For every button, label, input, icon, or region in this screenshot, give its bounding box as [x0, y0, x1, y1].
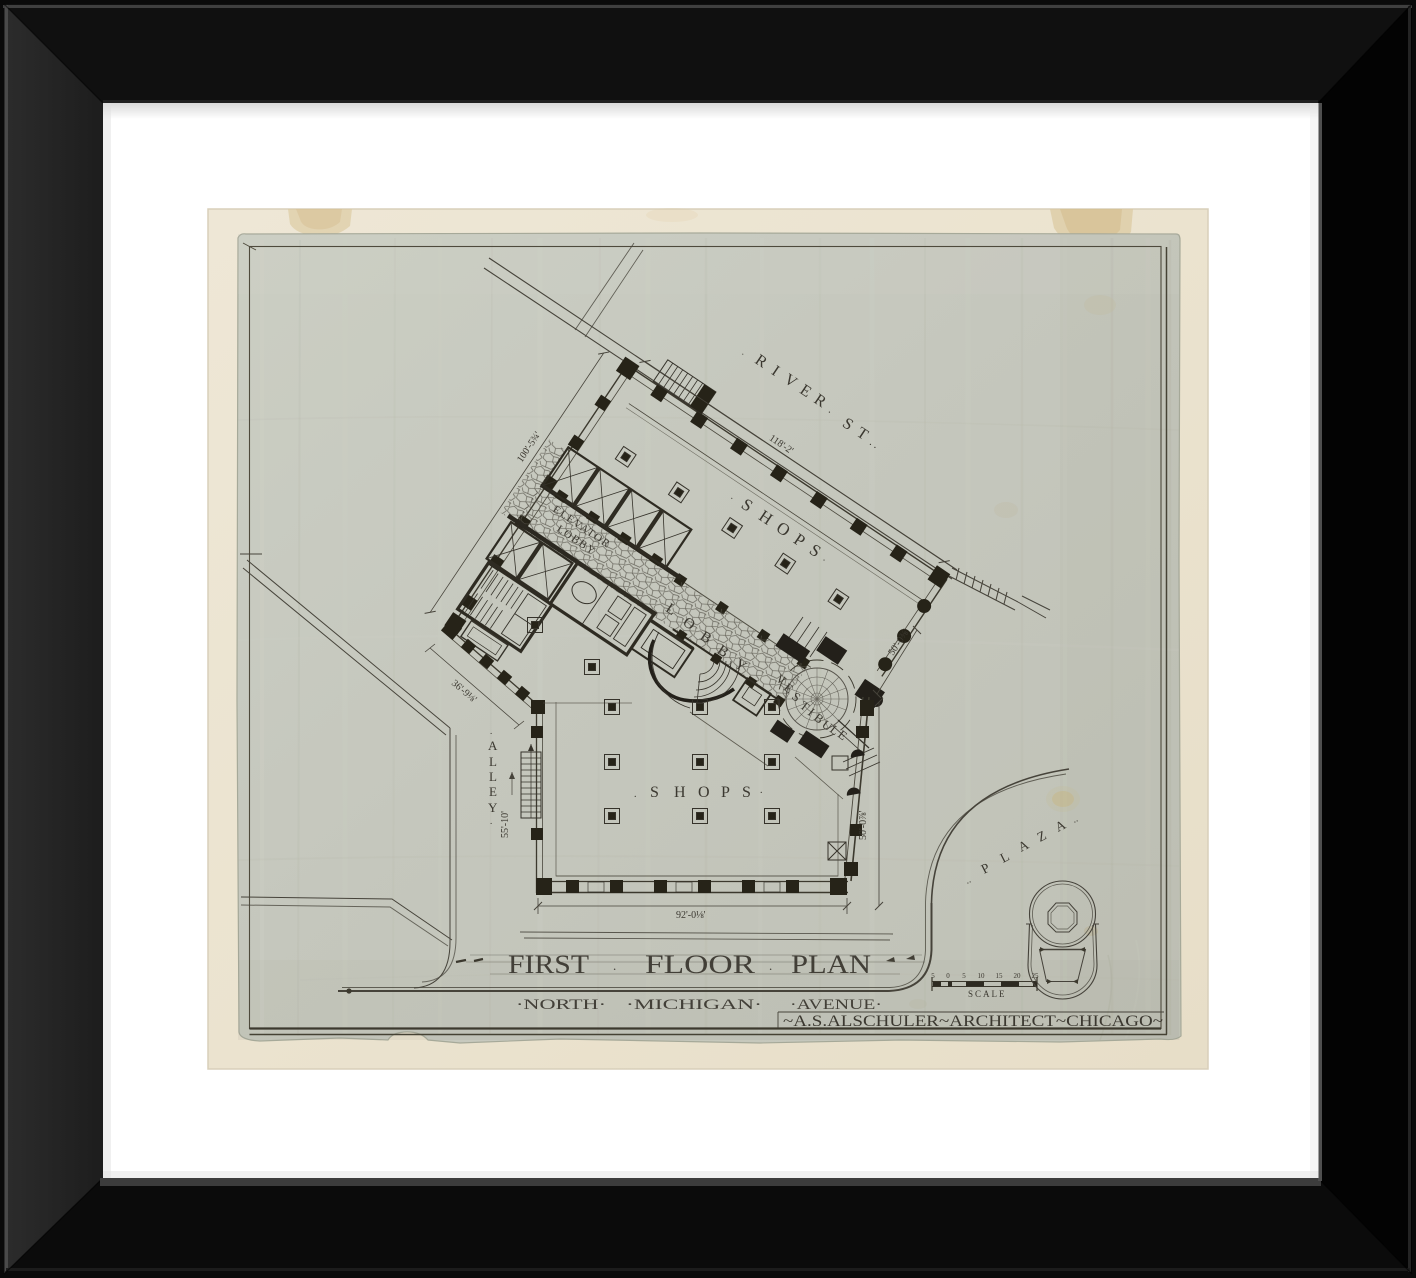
svg-text:Y: Y — [488, 800, 498, 815]
svg-text:A: A — [488, 738, 498, 753]
svg-text:~A.S.ALSCHULER~ARCHITECT~CHICA: ~A.S.ALSCHULER~ARCHITECT~CHICAGO~ — [783, 1013, 1163, 1030]
svg-text:20: 20 — [1014, 972, 1022, 980]
svg-text:·AVENUE·: ·AVENUE· — [790, 997, 882, 1013]
svg-text:L: L — [489, 754, 497, 769]
svg-text:O: O — [698, 784, 710, 801]
svg-text:·NORTH·: ·NORTH· — [516, 997, 606, 1013]
svg-text:50'-0⅞': 50'-0⅞' — [858, 810, 869, 840]
svg-text:.: . — [769, 958, 772, 973]
svg-text:.: . — [760, 785, 763, 796]
svg-text:H: H — [674, 784, 686, 801]
svg-text:5: 5 — [931, 972, 935, 980]
svg-text:SCALE: SCALE — [968, 989, 1007, 999]
svg-text:L: L — [489, 769, 497, 784]
svg-text:15: 15 — [996, 972, 1004, 980]
svg-text:10: 10 — [978, 972, 986, 980]
svg-text:.: . — [490, 726, 492, 736]
svg-text:.: . — [634, 789, 637, 800]
svg-text:5: 5 — [962, 972, 966, 980]
svg-text:0: 0 — [946, 972, 950, 980]
svg-text:.: . — [490, 816, 492, 826]
svg-text:FLOOR: FLOOR — [645, 950, 756, 979]
svg-text:.: . — [613, 958, 616, 973]
svg-text:S: S — [650, 784, 659, 801]
svg-text:·MICHIGAN·: ·MICHIGAN· — [626, 997, 762, 1013]
svg-text:E: E — [489, 784, 497, 799]
svg-text:PLAN: PLAN — [791, 950, 871, 979]
svg-text:P: P — [721, 784, 730, 801]
svg-text:S: S — [742, 784, 751, 801]
svg-text:FIRST: FIRST — [508, 950, 589, 979]
svg-text:55'-10': 55'-10' — [500, 811, 511, 838]
svg-text:92'-0⅛': 92'-0⅛' — [676, 910, 706, 921]
